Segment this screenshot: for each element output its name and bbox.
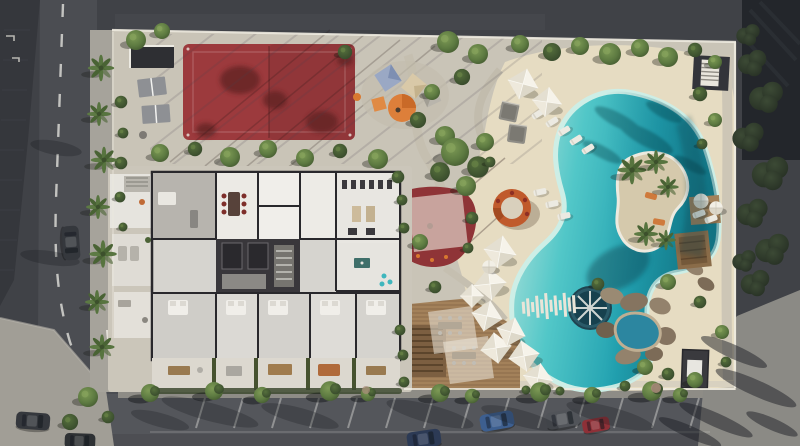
- parked-car-left: [59, 225, 81, 260]
- south-terraces: [152, 358, 400, 390]
- play-equipment: [396, 108, 401, 113]
- ping-pong-table: [137, 76, 167, 97]
- pink-foliage: [362, 386, 370, 394]
- top-driveway: [115, 14, 545, 30]
- parked-car: [64, 433, 95, 446]
- pink-foliage: [651, 383, 661, 393]
- ping-pong-table: [141, 104, 170, 124]
- building-floorplan: [108, 166, 412, 394]
- bistro-table: [139, 131, 147, 139]
- play-toy: [353, 93, 361, 101]
- parked-car: [15, 411, 50, 433]
- elevator-core: [216, 239, 300, 293]
- scene-canvas: [0, 0, 800, 446]
- aerial-site-render: [0, 0, 800, 446]
- spa-pool: [615, 313, 660, 350]
- dining-set: [222, 192, 247, 216]
